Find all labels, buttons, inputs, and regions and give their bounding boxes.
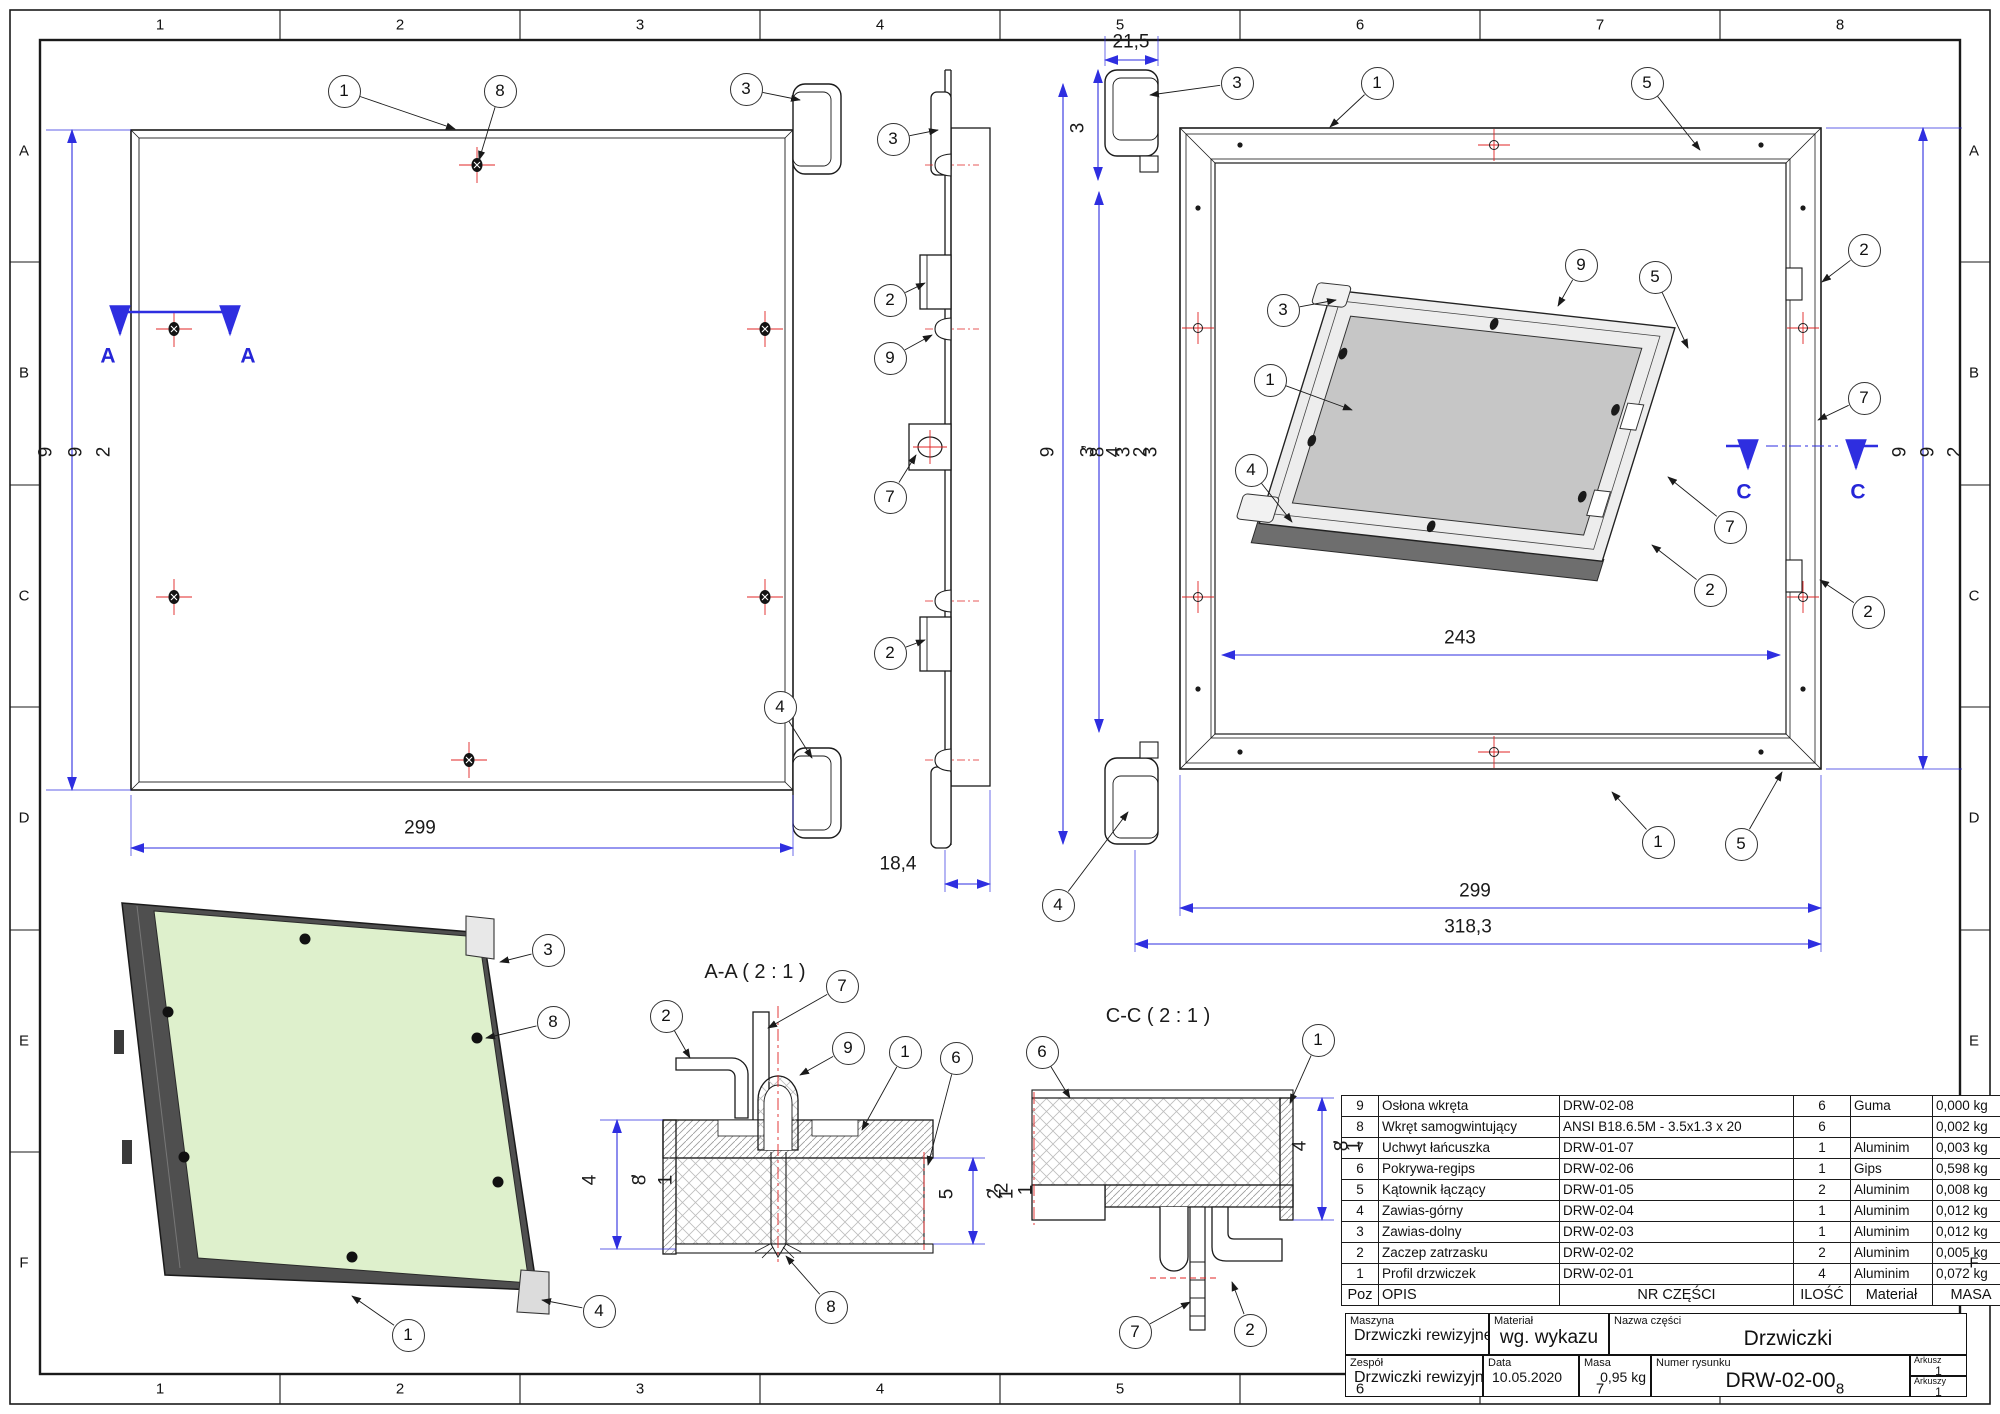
grid-row-label: C (1969, 588, 1980, 605)
bom-cell: 0,002 kg (1933, 1117, 2000, 1138)
bom-cell: DRW-02-04 (1560, 1201, 1794, 1222)
leader-line (542, 1300, 582, 1308)
bom-header-cell: NR CZĘŚCI (1560, 1285, 1794, 1306)
bom-cell: DRW-02-02 (1560, 1243, 1794, 1264)
leader-line (800, 1056, 833, 1075)
dim-label: 243 (1444, 629, 1476, 648)
grid-col-label: 1 (156, 1381, 164, 1398)
grid-col-label: 2 (396, 1381, 404, 1398)
bom-cell: Wkręt samogwintujący (1379, 1117, 1560, 1138)
balloon-2: 2 (874, 284, 907, 317)
bom-cell: 0,000 kg (1933, 1096, 2000, 1117)
bom-cell: DRW-01-05 (1560, 1180, 1794, 1201)
leader-line (1822, 260, 1850, 282)
bom-cell: 2 (1794, 1243, 1851, 1264)
balloon-3: 3 (730, 73, 763, 106)
bom-cell: 2 (1794, 1180, 1851, 1201)
grid-col-label: 8 (1836, 1381, 1844, 1398)
bom-cell: DRW-02-08 (1560, 1096, 1794, 1117)
material-label: Materiał (1490, 1314, 1608, 1327)
grid-col-label: 3 (636, 1381, 644, 1398)
bom-cell: 1 (1794, 1201, 1851, 1222)
table-row: 9Osłona wkrętaDRW-02-086Guma0,000 kg (1342, 1096, 2000, 1117)
zespol-label: Zespół (1346, 1356, 1482, 1369)
bom-cell: 9 (1342, 1096, 1379, 1117)
balloon-2: 2 (874, 637, 907, 670)
nazwa-value: Drzwiczki (1610, 1327, 1966, 1351)
table-row: 8Wkręt samogwintującyANSI B18.6.5M - 3.5… (1342, 1117, 2000, 1138)
dim-label: 318,3 (1444, 918, 1492, 937)
bom-cell: Aluminim (1851, 1201, 1933, 1222)
table-row: 5Kątownik łączącyDRW-01-052Aluminim0,008… (1342, 1180, 2000, 1201)
bom-cell: 0,598 kg (1933, 1159, 2000, 1180)
leader-line (1658, 96, 1700, 150)
balloon-6: 6 (1026, 1036, 1059, 1069)
titleblock-zespol: Zespół Drzwiczki rewizyjne (1345, 1355, 1483, 1397)
drawing-sheet: 9Osłona wkrętaDRW-02-086Guma0,000 kg8Wkr… (0, 0, 2000, 1414)
bom-cell: Aluminim (1851, 1180, 1933, 1201)
balloon-2: 2 (1848, 234, 1881, 267)
balloon-1: 1 (1642, 826, 1675, 859)
balloon-5: 5 (1631, 67, 1664, 100)
bom-cell: 6 (1794, 1096, 1851, 1117)
grid-row-label: B (1969, 365, 1979, 382)
leader-line (479, 107, 495, 160)
balloon-1: 1 (392, 1319, 425, 1352)
bom-cell (1851, 1117, 1933, 1138)
leader-line (768, 994, 827, 1028)
bom-header-cell: Poz (1342, 1285, 1379, 1306)
grid-row-label: B (19, 365, 29, 382)
balloon-2: 2 (1852, 596, 1885, 629)
leader-line (1290, 1056, 1311, 1103)
table-row: 2Zaczep zatrzaskuDRW-02-022Aluminim0,005… (1342, 1243, 2000, 1264)
grid-row-label: E (1969, 1033, 1979, 1050)
dim-label: 4 (581, 1175, 600, 1186)
leader-line (1749, 772, 1782, 829)
leader-line (905, 283, 925, 293)
bom-cell: ANSI B18.6.5M - 3.5x1.3 x 20 (1560, 1117, 1794, 1138)
leader-line (862, 1067, 897, 1130)
grid-col-label: 8 (1836, 17, 1844, 34)
dim-label: 5 (938, 1189, 957, 1200)
dim-label: 18,4 (880, 855, 917, 874)
table-row: 4Zawias-górnyDRW-02-041Aluminim0,012 kg (1342, 1201, 2000, 1222)
leader-line (789, 721, 812, 758)
balloon-3: 3 (1221, 67, 1254, 100)
balloon-4: 4 (1042, 889, 1075, 922)
bom-cell: 0,003 kg (1933, 1138, 2000, 1159)
bom-cell: 1 (1794, 1159, 1851, 1180)
bom-cell: 0,012 kg (1933, 1201, 2000, 1222)
bom-cell: 0,072 kg (1933, 1264, 2000, 1285)
balloon-7: 7 (1714, 511, 1747, 544)
grid-col-label: 1 (156, 17, 164, 34)
grid-col-label: 4 (876, 17, 884, 34)
grid-col-label: 6 (1356, 17, 1364, 34)
leader-line (905, 335, 932, 350)
bom-cell: Aluminim (1851, 1243, 1933, 1264)
section-title: C-C ( 2 : 1 ) (1106, 1006, 1210, 1026)
dim-label: C (1736, 482, 1751, 503)
dim-label: 299 (404, 819, 436, 838)
table-row: 3Zawias-dolnyDRW-02-031Aluminim0,012 kg (1342, 1222, 2000, 1243)
masa-value: 0,95 kg (1580, 1369, 1650, 1385)
material-value: wg. wykazu (1490, 1327, 1608, 1349)
bom-header-row: PozOPISNR CZĘŚCIILOŚĆMateriałMASA (1342, 1285, 2000, 1306)
grid-row-label: E (19, 1033, 29, 1050)
titleblock-arkusz: Arkusz 1 (1910, 1355, 1967, 1376)
leader-line (500, 954, 532, 962)
balloon-3: 3 (1267, 294, 1300, 327)
balloon-2: 2 (1234, 1314, 1267, 1347)
numer-value: DRW-02-00 (1652, 1369, 1909, 1393)
titleblock-maszyna: Maszyna Drzwiczki rewizyjne (1345, 1313, 1489, 1355)
bom-cell: 6 (1342, 1159, 1379, 1180)
bom-cell: 1 (1342, 1264, 1379, 1285)
dim-label: A (100, 346, 115, 367)
bom-cell: Osłona wkręta (1379, 1096, 1560, 1117)
dim-label: 2 (95, 447, 114, 458)
bom-cell: DRW-02-01 (1560, 1264, 1794, 1285)
dim-label: C (1850, 482, 1865, 503)
titleblock-arkuszy: Arkuszy 1 (1910, 1376, 1967, 1397)
balloon-2: 2 (650, 1000, 683, 1033)
balloon-8: 8 (484, 75, 517, 108)
grid-col-label: 3 (636, 17, 644, 34)
bom-header-cell: ILOŚĆ (1794, 1285, 1851, 1306)
titleblock-data: Data 10.05.2020 (1483, 1355, 1579, 1397)
balloon-9: 9 (1565, 249, 1598, 282)
balloon-1: 1 (1254, 364, 1287, 397)
maszyna-value: Drzwiczki rewizyjne (1346, 1327, 1488, 1345)
grid-col-label: 7 (1596, 17, 1604, 34)
balloon-9: 9 (832, 1032, 865, 1065)
leader-line (1150, 85, 1220, 95)
balloon-2: 2 (1694, 574, 1727, 607)
grid-col-label: 7 (1596, 1381, 1604, 1398)
table-row: 6Pokrywa-regipsDRW-02-061Gips0,598 kg (1342, 1159, 2000, 1180)
bom-cell: 3 (1342, 1222, 1379, 1243)
data-value: 10.05.2020 (1484, 1369, 1578, 1385)
leader-line (786, 1256, 820, 1294)
balloon-9: 9 (874, 342, 907, 375)
leader-line (1662, 292, 1688, 348)
bom-cell: Aluminim (1851, 1264, 1933, 1285)
leader-line (360, 97, 455, 129)
leader-line (1262, 483, 1292, 522)
bom-header-cell: OPIS (1379, 1285, 1560, 1306)
balloon-5: 5 (1725, 828, 1758, 861)
bom-cell: Guma (1851, 1096, 1933, 1117)
bom-cell: DRW-01-07 (1560, 1138, 1794, 1159)
balloon-1: 1 (1361, 67, 1394, 100)
grid-row-label: A (1969, 143, 1979, 160)
bom-cell: 1 (1794, 1222, 1851, 1243)
balloon-7: 7 (1848, 382, 1881, 415)
leader-line (1330, 95, 1365, 127)
balloon-8: 8 (537, 1006, 570, 1039)
grid-row-label: F (1969, 1255, 1978, 1272)
leader-line (763, 92, 800, 100)
bom-cell: 0,008 kg (1933, 1180, 2000, 1201)
dim-label: 1 (1345, 1141, 1364, 1152)
dim-label: 299 (1459, 882, 1491, 901)
leader-line (910, 130, 938, 136)
leader-line (1818, 405, 1849, 420)
bom-cell: Zawias-górny (1379, 1201, 1560, 1222)
dim-label: 9 (1919, 447, 1938, 458)
bom-cell: Profil drzwiczek (1379, 1264, 1560, 1285)
balloon-7: 7 (826, 970, 859, 1003)
leader-line (1150, 1302, 1190, 1324)
leader-line (1652, 545, 1697, 580)
bom-cell: DRW-02-03 (1560, 1222, 1794, 1243)
grid-col-label: 5 (1116, 17, 1124, 34)
balloon-8: 8 (815, 1291, 848, 1324)
leader-line (1558, 280, 1573, 306)
grid-col-label: 4 (876, 1381, 884, 1398)
dim-label: 4 (1291, 1141, 1310, 1152)
grid-row-label: C (19, 588, 30, 605)
bom-cell: Zawias-dolny (1379, 1222, 1560, 1243)
bom-cell: Pokrywa-regips (1379, 1159, 1560, 1180)
balloon-4: 4 (583, 1295, 616, 1328)
balloon-3: 3 (532, 934, 565, 967)
dim-label: 9 (1039, 447, 1058, 458)
dim-label: A (240, 346, 255, 367)
bom-cell: 4 (1342, 1201, 1379, 1222)
balloon-3: 3 (877, 123, 910, 156)
bom-cell: 6 (1794, 1117, 1851, 1138)
dim-label: 21,5 (1113, 33, 1150, 52)
balloon-1: 1 (328, 75, 361, 108)
dim-label: 8 (631, 1175, 650, 1186)
bom-header-cell: Materiał (1851, 1285, 1933, 1306)
balloon-4: 4 (764, 691, 797, 724)
leader-line (1286, 386, 1352, 410)
grid-row-label: F (19, 1255, 28, 1272)
dim-label: 9 (1891, 447, 1910, 458)
leader-line (352, 1296, 394, 1325)
maszyna-label: Maszyna (1346, 1314, 1488, 1327)
arkuszy-value: 1 (1911, 1386, 1966, 1398)
leader-line (899, 455, 916, 483)
leader-line (1068, 812, 1128, 891)
data-label: Data (1484, 1356, 1578, 1369)
numer-label: Numer rysunku (1652, 1356, 1909, 1369)
grid-row-label: A (19, 143, 29, 160)
bom-cell: Uchwyt łańcuszka (1379, 1138, 1560, 1159)
table-row: 1Profil drzwiczekDRW-02-014Aluminim0,072… (1342, 1264, 2000, 1285)
bom-cell: 2 (1342, 1243, 1379, 1264)
bom-cell: 5 (1342, 1180, 1379, 1201)
grid-row-label: D (1969, 810, 1980, 827)
table-row: 7Uchwyt łańcuszkaDRW-01-071Aluminim0,003… (1342, 1138, 2000, 1159)
leader-line (1668, 477, 1717, 516)
balloon-5: 5 (1639, 261, 1672, 294)
dim-label: 1 (657, 1175, 676, 1186)
bom-table: 9Osłona wkrętaDRW-02-086Guma0,000 kg8Wkr… (1341, 1095, 2000, 1306)
bom-header-cell: MASA (1933, 1285, 2000, 1306)
balloon-7: 7 (874, 481, 907, 514)
balloon-7: 7 (1119, 1316, 1152, 1349)
grid-col-label: 2 (396, 17, 404, 34)
leader-line (1612, 792, 1646, 829)
leader-line (1820, 580, 1854, 603)
dim-label: 3 (1142, 447, 1161, 458)
balloon-1: 1 (889, 1036, 922, 1069)
zespol-value: Drzwiczki rewizyjne (1346, 1369, 1482, 1387)
titleblock-nazwa: Nazwa części Drzwiczki (1609, 1313, 1967, 1355)
balloon-6: 6 (940, 1042, 973, 1075)
leader-line (906, 640, 925, 647)
dim-label: 9 (67, 447, 86, 458)
dim-label: 3 (1069, 123, 1088, 134)
masa-label: Masa (1580, 1356, 1650, 1369)
leader-line (1232, 1282, 1244, 1314)
grid-col-label: 6 (1356, 1381, 1364, 1398)
bom-cell: 8 (1342, 1117, 1379, 1138)
bom-cell: Gips (1851, 1159, 1933, 1180)
leader-line (1300, 300, 1336, 307)
grid-row-label: D (19, 810, 30, 827)
bom-cell: Zaczep zatrzasku (1379, 1243, 1560, 1264)
bom-cell: 4 (1794, 1264, 1851, 1285)
titleblock-numer: Numer rysunku DRW-02-00 (1651, 1355, 1910, 1397)
leader-line (928, 1074, 952, 1165)
dim-label: 2 (1946, 447, 1965, 458)
titleblock-masa: Masa 0,95 kg (1579, 1355, 1651, 1397)
bom-cell: Kątownik łączący (1379, 1180, 1560, 1201)
bom-cell: 1 (1794, 1138, 1851, 1159)
bom-cell: Aluminim (1851, 1138, 1933, 1159)
dim-label: 2 (993, 1183, 1012, 1194)
section-title: A-A ( 2 : 1 ) (704, 962, 805, 982)
balloon-1: 1 (1302, 1024, 1335, 1057)
bom-cell: 0,012 kg (1933, 1222, 2000, 1243)
titleblock-material: Materiał wg. wykazu (1489, 1313, 1609, 1355)
leader-line (486, 1026, 536, 1038)
dim-label: 9 (37, 447, 56, 458)
balloon-4: 4 (1235, 454, 1268, 487)
grid-col-label: 5 (1116, 1381, 1124, 1398)
bom-cell: Aluminim (1851, 1222, 1933, 1243)
bom-cell: 0,005 kg (1933, 1243, 2000, 1264)
leader-line (674, 1031, 690, 1058)
leader-line (1051, 1067, 1070, 1098)
nazwa-label: Nazwa części (1610, 1314, 1966, 1327)
dim-label: 1 (1017, 1185, 1036, 1196)
bom-cell: DRW-02-06 (1560, 1159, 1794, 1180)
